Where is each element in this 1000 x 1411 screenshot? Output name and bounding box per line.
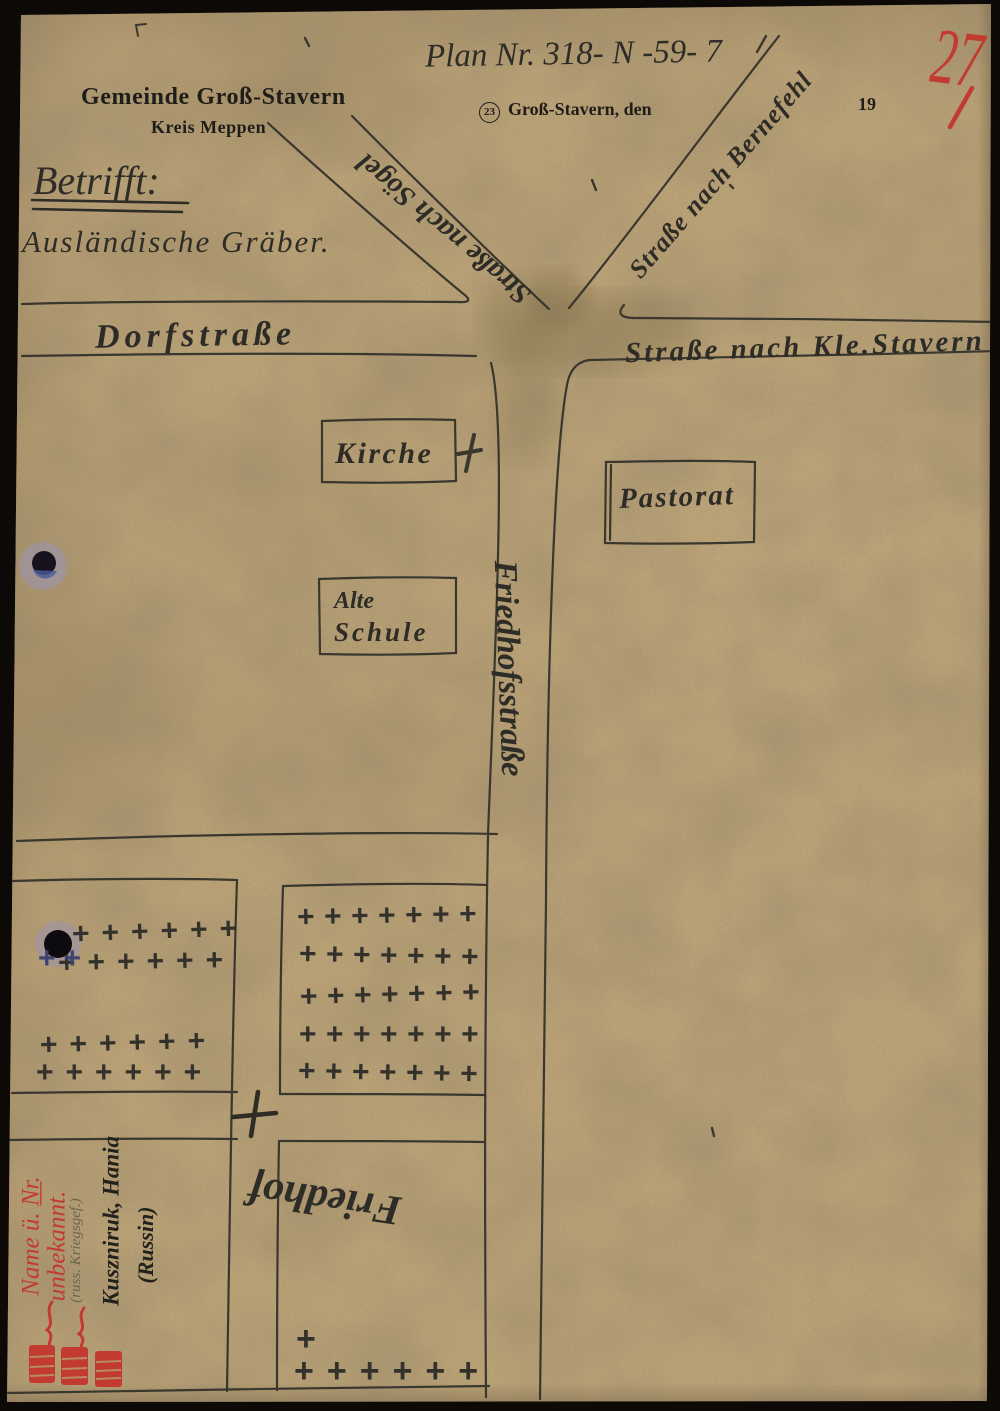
svg-text:+++++++: +++++++ bbox=[299, 937, 489, 973]
svg-text:++: ++ bbox=[38, 942, 89, 975]
svg-text:+++++++: +++++++ bbox=[300, 975, 490, 1013]
svg-text:+++++++: +++++++ bbox=[299, 1018, 488, 1051]
svg-text:++++++: ++++++ bbox=[294, 1352, 491, 1390]
svg-text:+++++++: +++++++ bbox=[298, 1054, 488, 1090]
svg-text:++++++: ++++++ bbox=[36, 1056, 213, 1089]
svg-text:+++++++: +++++++ bbox=[297, 897, 487, 933]
